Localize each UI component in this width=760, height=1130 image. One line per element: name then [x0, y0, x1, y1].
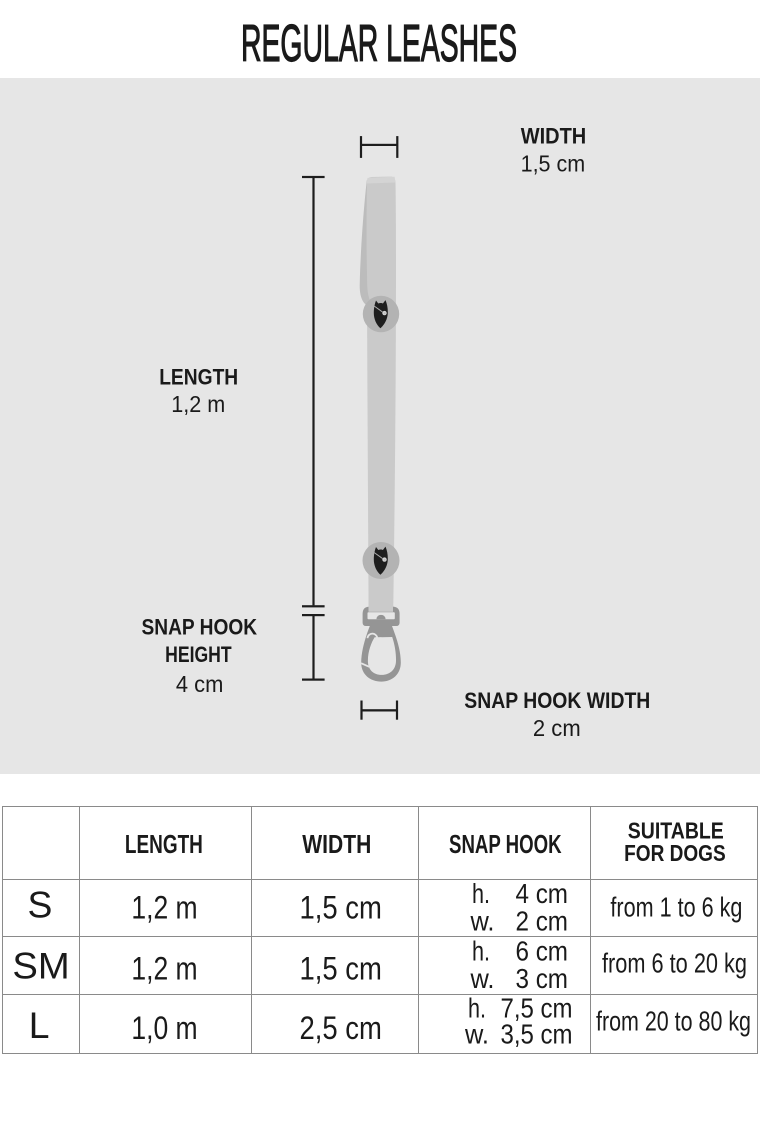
svg-text:SNAP HOOK: SNAP HOOK: [449, 829, 562, 859]
svg-text:3,5 cm: 3,5 cm: [501, 1019, 573, 1050]
svg-text:4 cm: 4 cm: [176, 671, 224, 697]
svg-text:2 cm: 2 cm: [533, 715, 581, 741]
svg-text:1,5 cm: 1,5 cm: [300, 890, 382, 926]
svg-text:1,2 m: 1,2 m: [131, 951, 197, 987]
svg-text:3 cm: 3 cm: [516, 963, 569, 994]
svg-text:LENGTH: LENGTH: [125, 829, 203, 859]
svg-text:1,2 m: 1,2 m: [171, 391, 225, 417]
svg-text:WIDTH: WIDTH: [302, 829, 371, 859]
svg-text:LENGTH: LENGTH: [159, 364, 238, 389]
svg-text:1,5 cm: 1,5 cm: [300, 951, 382, 987]
svg-text:FOR DOGS: FOR DOGS: [624, 840, 726, 866]
svg-text:from 6 to 20 kg: from 6 to 20 kg: [602, 948, 747, 979]
svg-text:SNAP HOOK: SNAP HOOK: [142, 615, 258, 640]
svg-text:SNAP HOOK WIDTH: SNAP HOOK WIDTH: [464, 688, 650, 713]
svg-text:L: L: [29, 1004, 50, 1046]
svg-text:h.: h.: [472, 878, 490, 909]
svg-text:2 cm: 2 cm: [516, 906, 569, 937]
svg-text:h.: h.: [472, 935, 490, 966]
svg-text:from 20 to 80 kg: from 20 to 80 kg: [596, 1006, 751, 1037]
svg-text:REGULAR LEASHES: REGULAR LEASHES: [241, 14, 517, 72]
svg-text:WIDTH: WIDTH: [521, 123, 587, 148]
svg-text:1,0 m: 1,0 m: [131, 1010, 197, 1046]
svg-text:w.: w.: [470, 963, 495, 994]
svg-text:from 1 to 6 kg: from 1 to 6 kg: [610, 891, 742, 922]
svg-text:1,2 m: 1,2 m: [131, 890, 197, 926]
svg-text:S: S: [28, 883, 53, 925]
svg-text:4 cm: 4 cm: [516, 878, 569, 909]
svg-text:2,5 cm: 2,5 cm: [300, 1010, 382, 1046]
svg-text:1,5 cm: 1,5 cm: [521, 151, 586, 177]
svg-text:SM: SM: [12, 945, 69, 987]
svg-text:w.: w.: [470, 906, 495, 937]
svg-text:w.: w.: [464, 1019, 489, 1050]
svg-text:HEIGHT: HEIGHT: [165, 642, 232, 667]
svg-text:6 cm: 6 cm: [516, 935, 569, 966]
